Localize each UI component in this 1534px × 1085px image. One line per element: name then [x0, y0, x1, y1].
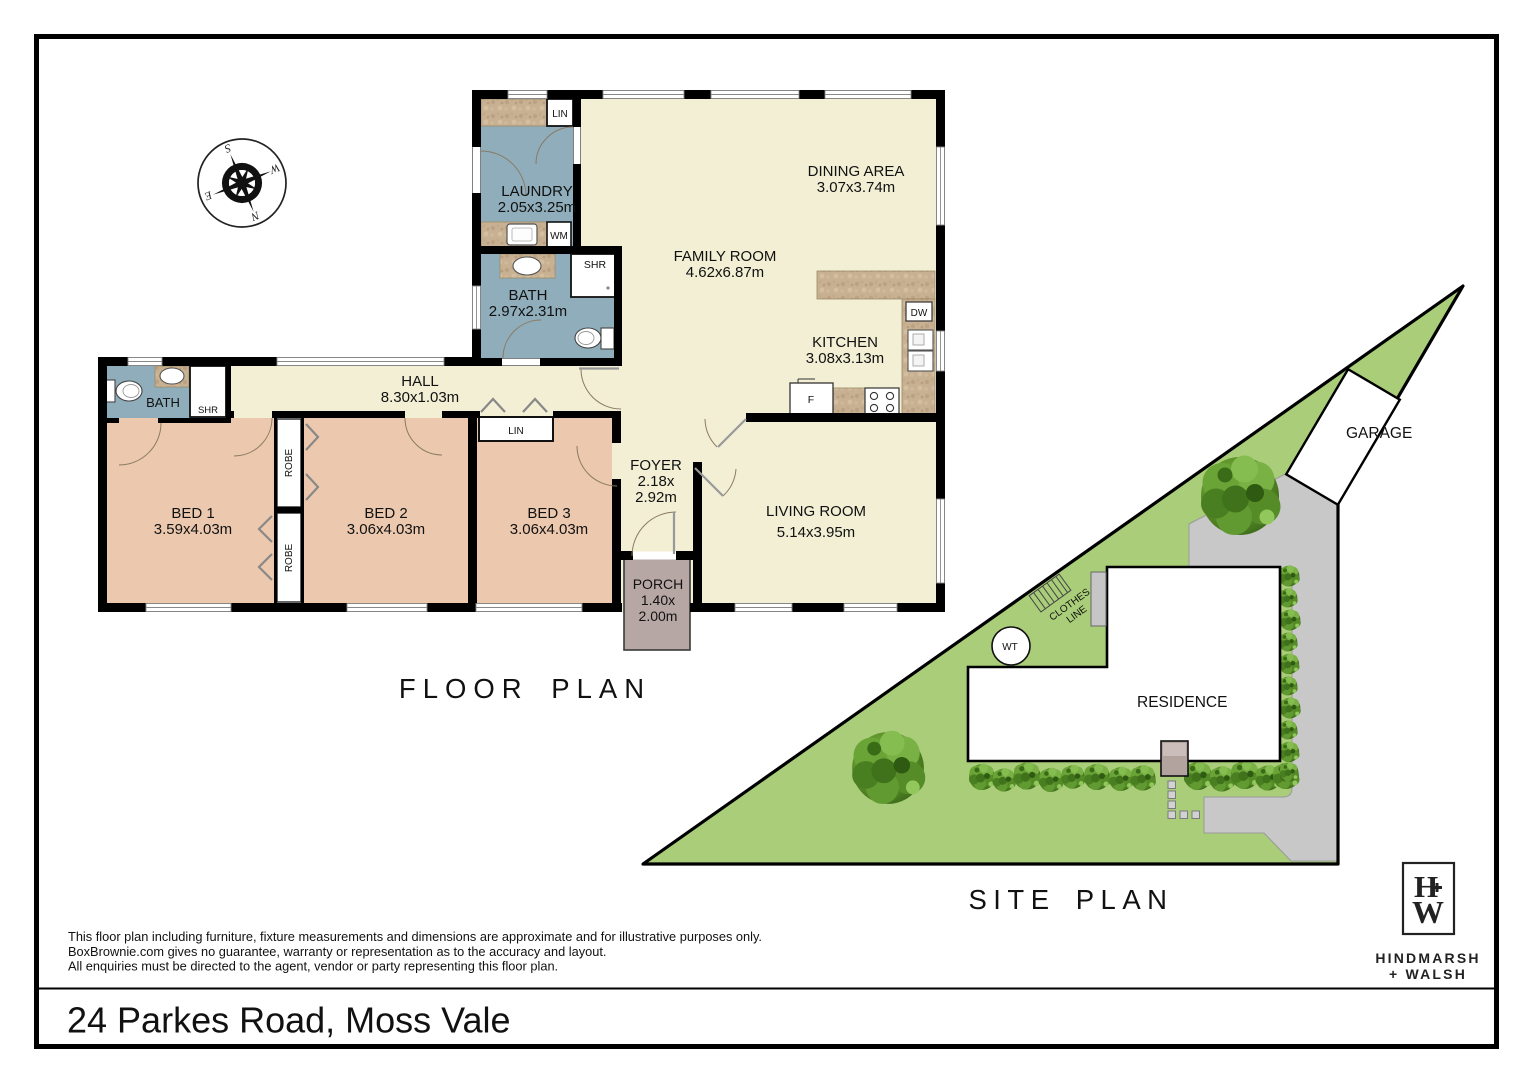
- svg-text:2.05x3.25m: 2.05x3.25m: [498, 199, 576, 216]
- svg-text:KITCHEN: KITCHEN: [812, 334, 878, 351]
- svg-text:LIVING ROOM: LIVING ROOM: [766, 503, 866, 520]
- svg-text:3.59x4.03m: 3.59x4.03m: [154, 521, 232, 538]
- svg-text:2.92m: 2.92m: [635, 489, 677, 506]
- svg-text:HINDMARSH: HINDMARSH: [1375, 950, 1480, 966]
- svg-text:DW: DW: [911, 308, 928, 319]
- svg-text:2.97x2.31m: 2.97x2.31m: [489, 303, 567, 320]
- svg-text:ROBE: ROBE: [284, 449, 295, 478]
- svg-text:FOYER: FOYER: [630, 457, 682, 474]
- svg-text:BED 2: BED 2: [364, 505, 407, 522]
- svg-text:BATH: BATH: [509, 287, 548, 304]
- svg-text:ROBE: ROBE: [284, 544, 295, 573]
- svg-text:24 Parkes Road, Moss Vale: 24 Parkes Road, Moss Vale: [67, 1000, 511, 1041]
- svg-text:GARAGE: GARAGE: [1346, 425, 1412, 442]
- svg-text:1.40x: 1.40x: [641, 592, 675, 608]
- svg-text:FAMILY ROOM: FAMILY ROOM: [674, 248, 777, 265]
- svg-text:3.08x3.13m: 3.08x3.13m: [806, 350, 884, 367]
- svg-text:2.00m: 2.00m: [639, 608, 678, 624]
- svg-text:LIN: LIN: [552, 109, 568, 120]
- svg-text:3.06x4.03m: 3.06x4.03m: [347, 521, 425, 538]
- svg-text:This floor plan including furn: This floor plan including furniture, fix…: [68, 929, 762, 944]
- svg-text:3.07x3.74m: 3.07x3.74m: [817, 179, 895, 196]
- svg-text:RESIDENCE: RESIDENCE: [1137, 694, 1227, 711]
- svg-text:W: W: [1412, 894, 1444, 930]
- svg-text:BED 3: BED 3: [527, 505, 570, 522]
- svg-text:4.62x6.87m: 4.62x6.87m: [686, 264, 764, 281]
- svg-text:BED 1: BED 1: [171, 505, 214, 522]
- svg-text:PORCH: PORCH: [633, 576, 684, 592]
- svg-text:DINING AREA: DINING AREA: [808, 163, 905, 180]
- svg-text:HALL: HALL: [401, 373, 439, 390]
- svg-text:SHR: SHR: [584, 259, 607, 271]
- svg-text:SITE PLAN: SITE PLAN: [968, 884, 1173, 915]
- svg-text:WM: WM: [550, 231, 568, 242]
- svg-text:3.06x4.03m: 3.06x4.03m: [510, 521, 588, 538]
- svg-text:5.14x3.95m: 5.14x3.95m: [777, 524, 855, 541]
- svg-text:WT: WT: [1002, 642, 1018, 653]
- svg-text:All enquiries must be directed: All enquiries must be directed to the ag…: [68, 959, 558, 974]
- svg-text:BATH: BATH: [146, 395, 180, 410]
- svg-text:LIN: LIN: [508, 426, 524, 437]
- svg-text:8.30x1.03m: 8.30x1.03m: [381, 389, 459, 406]
- svg-text:2.18x: 2.18x: [638, 473, 675, 490]
- svg-text:SHR: SHR: [198, 405, 218, 416]
- svg-text:FLOOR PLAN: FLOOR PLAN: [399, 673, 651, 704]
- svg-text:LAUNDRY: LAUNDRY: [501, 183, 572, 200]
- svg-text:+ WALSH: + WALSH: [1389, 966, 1467, 982]
- svg-text:BoxBrownie.com gives no guaran: BoxBrownie.com gives no guarantee, warra…: [68, 944, 606, 959]
- svg-text:F: F: [808, 394, 814, 406]
